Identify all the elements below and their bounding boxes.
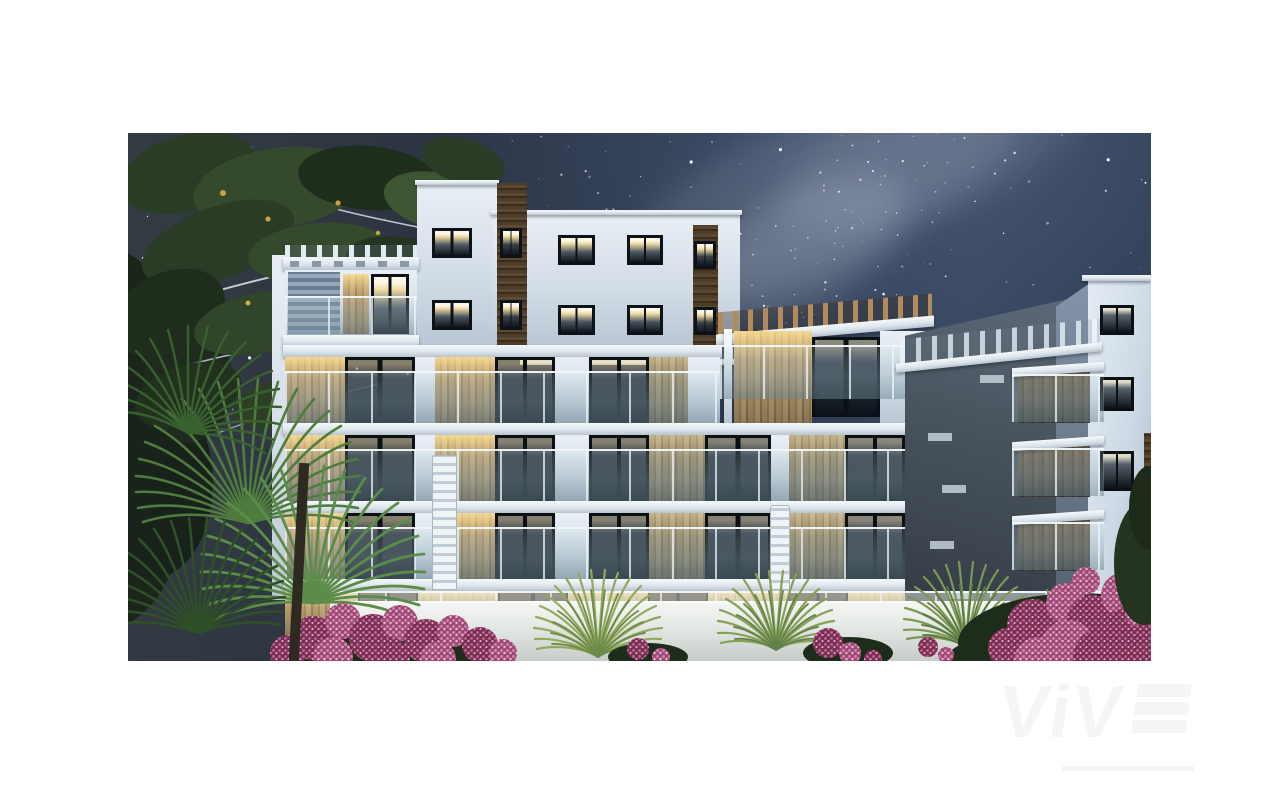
page: ViV — [0, 0, 1280, 800]
foreground-vegetation — [128, 133, 1151, 661]
watermark-bars-glyph — [1131, 684, 1192, 733]
watermark-text: ViV — [995, 676, 1129, 748]
watermark-tagline — [1062, 766, 1194, 771]
palm-fronds — [136, 379, 360, 523]
property-photo — [128, 133, 1151, 661]
watermark-logo: ViV — [995, 676, 1193, 748]
palm-fronds — [128, 518, 285, 633]
